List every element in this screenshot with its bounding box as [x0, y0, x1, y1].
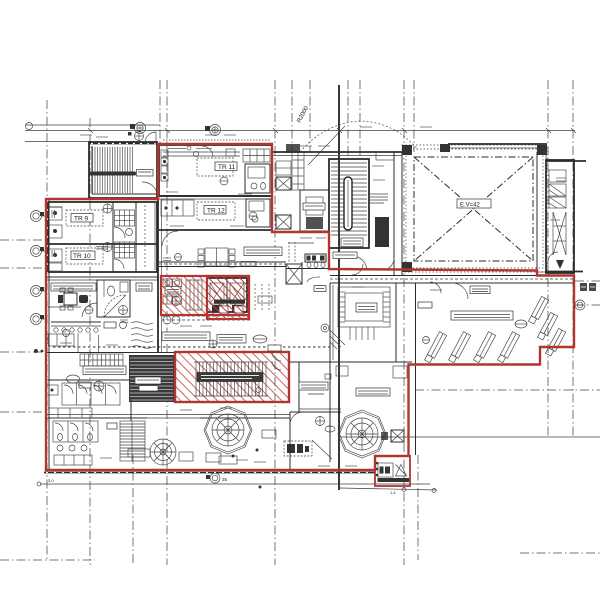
- svg-text:35: 35: [222, 477, 228, 482]
- svg-text:TR 11: TR 11: [218, 164, 236, 171]
- svg-text:TR 10: TR 10: [73, 253, 91, 260]
- svg-text:E.V=42: E.V=42: [460, 203, 481, 209]
- svg-text:1.4: 1.4: [390, 490, 396, 495]
- svg-text:TR 12: TR 12: [207, 208, 225, 215]
- svg-text:TR 9: TR 9: [74, 216, 88, 223]
- svg-text:3.0: 3.0: [48, 478, 54, 483]
